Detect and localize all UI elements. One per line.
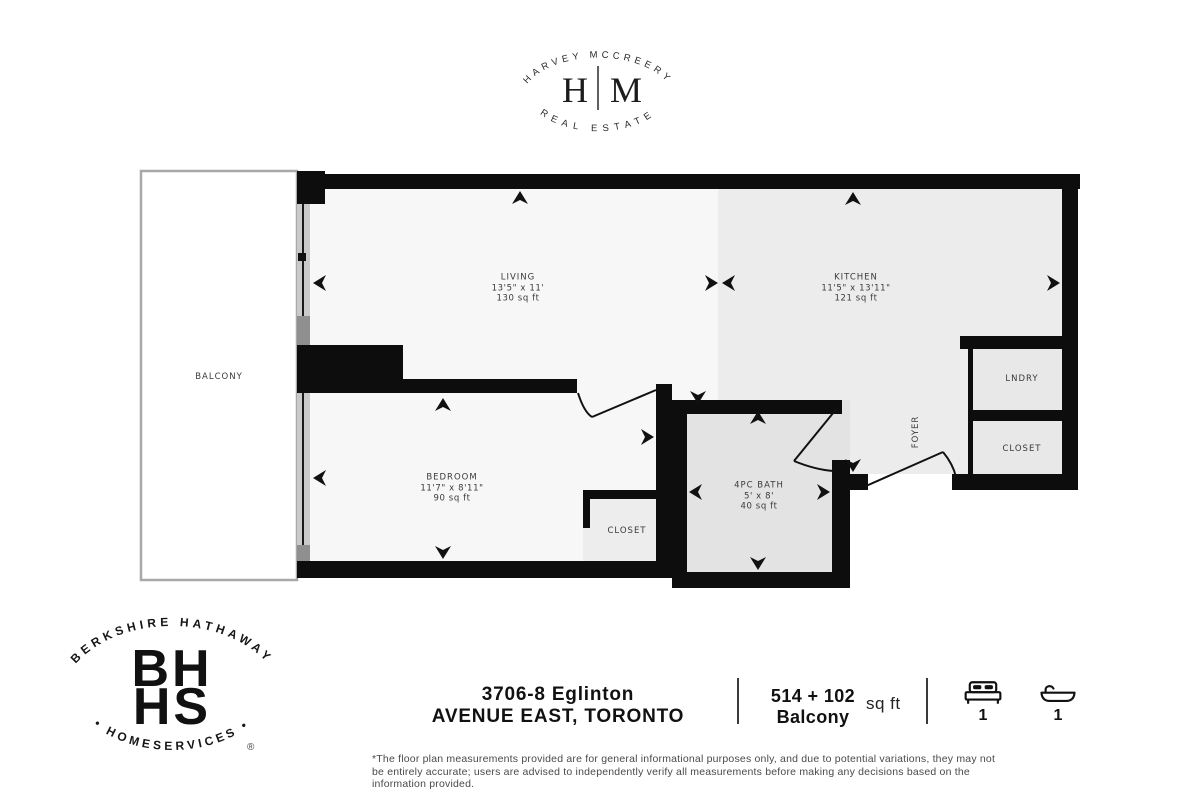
area-values: 514 + 102 [752, 686, 874, 707]
room-label-kitchen: KITCHEN 11'5" x 13'11" 121 sq ft [821, 272, 890, 304]
address-line-2: AVENUE EAST, TORONTO [398, 706, 718, 728]
area-balcony-label: Balcony [752, 707, 874, 728]
bathtub-icon [1039, 681, 1077, 706]
bhhs-monogram-hs: HS [133, 678, 211, 736]
disclaimer-text: *The floor plan measurements provided ar… [372, 753, 1112, 791]
room-label-bedroom-closet: CLOSET [607, 526, 646, 537]
footer-divider-left [737, 678, 739, 724]
room-label-laundry: LNDRY [1005, 374, 1038, 385]
room-label-foyer: FOYER [911, 416, 922, 449]
room-label-living: LIVING 13'5" x 11' 130 sq ft [492, 272, 545, 304]
room-label-bath: 4PC BATH 5' x 8' 40 sq ft [734, 480, 784, 512]
baths-count: 1 [1038, 707, 1078, 725]
bhhs-logo: BERKSHIRE HATHAWAY BH HS • HOMESERVICES … [55, 588, 295, 768]
room-label-entry-closet: CLOSET [1002, 444, 1041, 455]
room-label-balcony: BALCONY [195, 372, 243, 383]
floor-plan-page: HARVEY MCCREERY H M REAL ESTATE [0, 0, 1200, 805]
total-area: 514 + 102 Balcony [752, 686, 874, 728]
area-unit-label: sq ft [866, 694, 901, 714]
footer-divider-right [926, 678, 928, 724]
address-line-1: 3706-8 Eglinton [398, 684, 718, 706]
beds-count: 1 [963, 707, 1003, 725]
room-label-bedroom: BEDROOM 11'7" x 8'11" 90 sq ft [420, 472, 483, 504]
listing-address: 3706-8 Eglinton AVENUE EAST, TORONTO [398, 684, 718, 728]
bed-icon [964, 680, 1002, 706]
bhhs-registered-mark: ® [247, 742, 255, 753]
